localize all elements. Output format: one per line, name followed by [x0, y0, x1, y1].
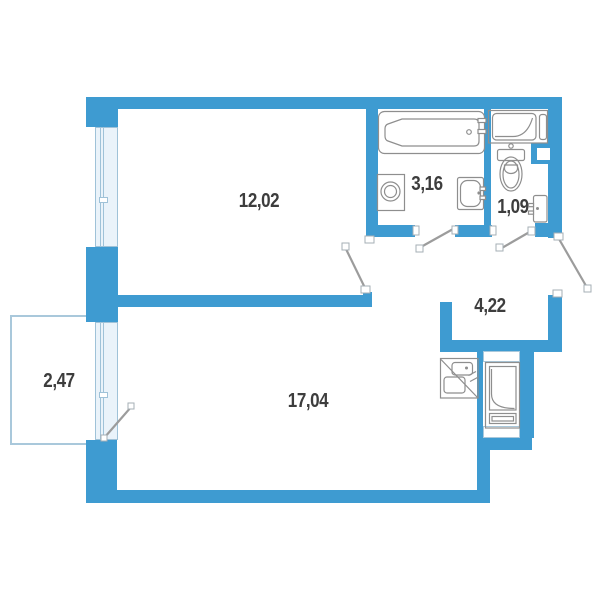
- wall-top: [86, 97, 562, 109]
- washbasin-counter-icon: [489, 111, 548, 144]
- balcony-window-frame-line: [103, 323, 104, 439]
- wall-left-upper-block: [86, 97, 118, 127]
- bedroom-window: [95, 127, 118, 247]
- wall-shaft-bottom: [477, 438, 532, 450]
- balcony-window-frame-line: [100, 323, 101, 439]
- wall-right-mid: [548, 295, 562, 340]
- room-label-bedroom: 12,02: [232, 190, 286, 213]
- wall-wc-south-block: [535, 223, 562, 237]
- wall-bedroom-south: [118, 295, 372, 307]
- bathtub-icon: [379, 112, 487, 154]
- entrance-door-swing: [553, 233, 591, 297]
- tall-appliance-icon: [486, 363, 520, 429]
- room-label-bathroom: 3,16: [400, 173, 454, 196]
- wall-bathroom-left: [366, 109, 378, 236]
- wall-hallway-left-stub: [440, 302, 452, 342]
- shaft-niche-top: [483, 351, 520, 362]
- wall-left-lower-block: [86, 440, 117, 503]
- bathroom-door-swing: [413, 226, 458, 252]
- vent-niche-opening: [537, 148, 550, 160]
- wall-right-upper: [548, 97, 562, 238]
- wall-left-mid-block: [86, 247, 118, 322]
- bathroom-sink-icon: [458, 178, 486, 210]
- floor-plan: 12,02 3,16 1,09 4,22 17,04 2,47: [0, 0, 600, 600]
- wc-door-swing: [490, 226, 535, 251]
- toilet-icon: [498, 144, 525, 191]
- room-label-balcony: 2,47: [32, 370, 86, 393]
- bedroom-window-frame-line: [103, 128, 104, 246]
- room-label-hallway: 4,22: [463, 295, 517, 318]
- wall-bottom: [86, 490, 490, 503]
- wall-bedroom-south-end: [363, 292, 372, 307]
- wall-bathroom-south-a: [366, 225, 415, 237]
- wall-bathroom-south-b: [455, 225, 492, 237]
- bedroom-window-frame-line: [100, 128, 101, 246]
- wall-shaft-right: [520, 352, 534, 438]
- room-label-wc: 1,09: [486, 196, 540, 219]
- bathroom-wall-end-cap: [365, 236, 374, 243]
- balcony-window-mullion: [99, 392, 108, 398]
- bedroom-door-swing: [342, 243, 370, 293]
- shaft-niche-bottom: [483, 426, 520, 438]
- kitchen-sink-icon: [441, 359, 479, 399]
- balcony-window: [95, 322, 118, 440]
- room-label-living-room: 17,04: [281, 390, 335, 413]
- bedroom-window-mullion: [99, 197, 108, 203]
